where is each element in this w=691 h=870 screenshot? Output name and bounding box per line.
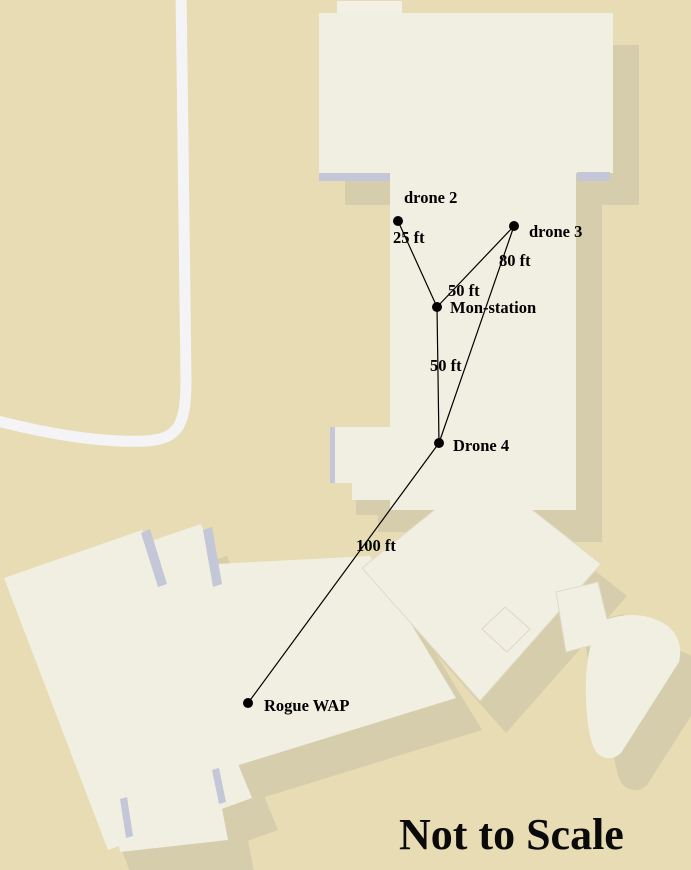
distance-label-drone-2-mon-station: 25 ft — [393, 228, 425, 247]
drone-4-label: Drone 4 — [453, 436, 509, 455]
distance-label-drone-3-drone-4: 80 ft — [499, 251, 531, 270]
campus-map: 25 ft50 ft80 ft50 ft100 ftdrone 2drone 3… — [0, 0, 691, 870]
drone-2-dot — [393, 216, 403, 226]
rogue-wap-label: Rogue WAP — [264, 696, 349, 715]
drone-2-label: drone 2 — [404, 188, 457, 207]
drone-3-label: drone 3 — [529, 222, 582, 241]
not-to-scale-label: Not to Scale — [399, 810, 624, 859]
distance-label-mon-station-drone-4: 50 ft — [430, 356, 462, 375]
edge-accent — [577, 172, 610, 181]
building-north-bump — [337, 1, 402, 13]
mon-station-label: Mon-station — [450, 298, 536, 317]
building-north-hall — [319, 13, 613, 173]
distance-label-drone-4-rogue-wap: 100 ft — [356, 536, 396, 555]
edge-accent — [330, 427, 335, 483]
edge-accent — [319, 173, 390, 181]
rogue-wap-dot — [243, 698, 253, 708]
drone-3-dot — [509, 221, 519, 231]
drone-4-dot — [434, 438, 444, 448]
mon-station-dot — [432, 302, 442, 312]
